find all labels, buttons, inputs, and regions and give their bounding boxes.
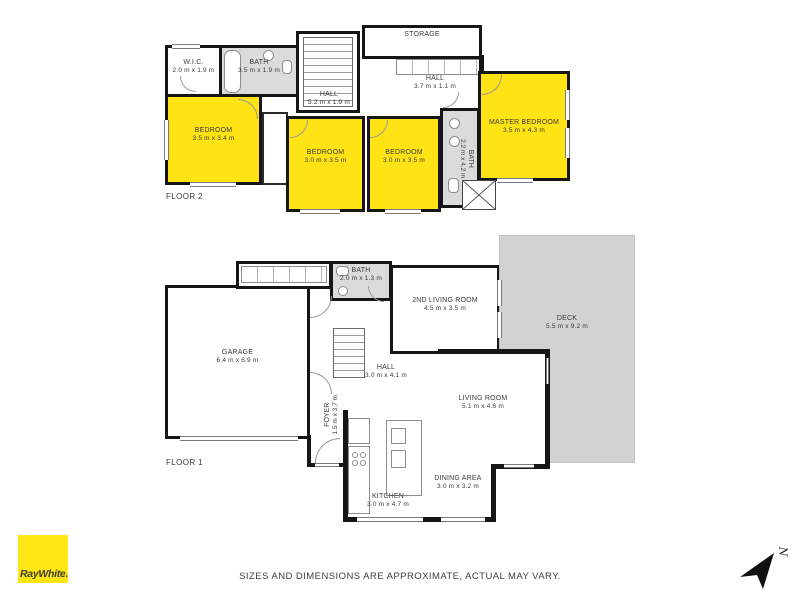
- sink-icon: [338, 286, 348, 296]
- window: [497, 312, 502, 338]
- label-hall2-floor2: HALL 3.7 m x 1.1 m: [405, 74, 465, 92]
- front-door-opening: [315, 463, 339, 467]
- window: [441, 517, 485, 522]
- label-bath-floor1: BATH 2.0 m x 1.3 m: [332, 266, 390, 284]
- label-deck: DECK 5.5 m x 9.2 m: [519, 314, 615, 332]
- north-letter: N: [777, 547, 790, 557]
- window: [385, 209, 421, 214]
- label-hall-floor1: HALL 3.0 m x 4.1 m: [346, 363, 426, 381]
- door-arc-icon: [443, 92, 459, 108]
- label-kitchen: KITCHEN 3.0 m x 4.7 m: [348, 492, 428, 510]
- window: [357, 517, 423, 522]
- door-arc-icon: [310, 296, 332, 318]
- north-arrow-glyph: [738, 549, 778, 591]
- burner-icon: [352, 452, 358, 458]
- north-arrow-icon: N: [738, 545, 790, 591]
- label-bedroom-3: BEDROOM 3.0 m x 3.5 m: [369, 148, 439, 166]
- wall-segment: [438, 349, 550, 354]
- label-bedroom-2: BEDROOM 3.0 m x 3.5 m: [288, 148, 363, 166]
- label-wic: W.I.C. 2.0 m x 1.9 m: [167, 58, 220, 76]
- label-bath2-floor2: BATH 2.2 m x 4.2 m: [457, 117, 475, 201]
- label-dining-area: DINING AREA 3.0 m x 3.2 m: [418, 474, 498, 492]
- label-master-bedroom: MASTER BEDROOM 3.5 m x 4.3 m: [480, 118, 568, 136]
- label-hall-floor2: HALL 5.2 m x 1.9 m: [298, 90, 360, 108]
- garage-door-opening: [180, 436, 298, 441]
- label-bedroom-1: BEDROOM 3.5 m x 3.4 m: [167, 126, 260, 144]
- wall-segment: [491, 464, 496, 521]
- burner-icon: [360, 460, 366, 466]
- disclaimer-text: SIZES AND DIMENSIONS ARE APPROXIMATE, AC…: [0, 571, 800, 582]
- island-sink-icon: [391, 450, 406, 468]
- label-garage: GARAGE 6.4 m x 6.9 m: [167, 348, 308, 366]
- burner-icon: [360, 452, 366, 458]
- window: [565, 90, 570, 120]
- window: [172, 44, 200, 49]
- window: [300, 209, 340, 214]
- wardrobe-shelf-floor2-icon: [396, 59, 482, 75]
- floor-1-label: FLOOR 1: [166, 458, 203, 467]
- label-2nd-living: 2ND LIVING ROOM 4.5 m x 3.5 m: [392, 296, 498, 314]
- entry-shelf-icon: [241, 266, 327, 283]
- burner-icon: [352, 460, 358, 466]
- label-living-room: LIVING ROOM 5.1 m x 4.6 m: [433, 394, 533, 412]
- label-storage: STORAGE: [366, 30, 478, 39]
- window: [190, 182, 236, 187]
- label-foyer: FOYER 1.5 m x 3.7 m: [323, 373, 341, 457]
- deck-area: [499, 235, 635, 353]
- deck-area-lower: [547, 351, 635, 463]
- window: [497, 178, 533, 183]
- fridge-icon: [348, 418, 370, 444]
- floorplan-page: W.I.C. 2.0 m x 1.9 m BATH 3.5 m x 1.9 m …: [0, 0, 800, 600]
- window: [504, 464, 534, 468]
- floor-2-label: FLOOR 2: [166, 192, 203, 201]
- label-bath-floor2: BATH 3.5 m x 1.9 m: [221, 58, 297, 76]
- cooktop-icon: [391, 428, 406, 444]
- closet-bedroom-1-icon: [262, 112, 288, 185]
- window: [546, 358, 549, 384]
